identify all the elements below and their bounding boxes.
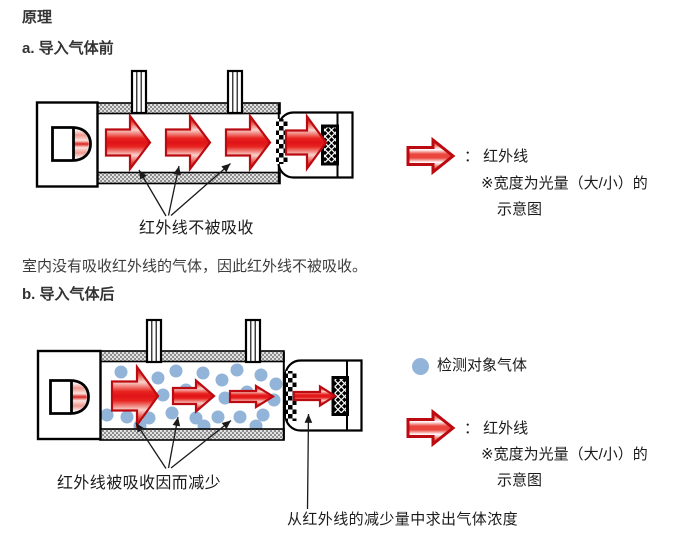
cell-wall-bottom	[96, 173, 280, 184]
ir-lamp-icon	[53, 128, 91, 161]
legend-b-gas-label: 检测对象气体	[437, 357, 527, 376]
legend-b-note-line2: 示意图	[497, 472, 542, 491]
caption-concentration: 从红外线的减少量中求出气体浓度	[287, 511, 518, 530]
legend-a-note-line2: 示意图	[497, 201, 542, 220]
body-paragraph: 室内没有吸收红外线的气体，因此红外线不被吸收。	[22, 258, 367, 277]
legend-b-arrow-label: ： 红外线	[464, 420, 528, 439]
legend-before-icons	[408, 140, 453, 172]
legend-ir-arrow-icon	[408, 140, 453, 172]
legend-b-note-line1: ※宽度为光量（大/小）的	[481, 446, 648, 465]
caption-absorbed-reduced: 红外线被吸收因而减少	[57, 474, 221, 494]
legend-a-note-line1: ※宽度为光量（大/小）的	[481, 175, 648, 194]
cell-wall-top	[96, 103, 280, 114]
cell-wall-bottom	[100, 429, 284, 440]
legend-ir-arrow-icon	[408, 412, 453, 444]
section-a-heading: a. 导入气体前	[22, 40, 114, 59]
gas-pipe-left	[147, 320, 161, 362]
gas-pipe-right	[228, 71, 242, 113]
legend-gas-dot-icon	[412, 358, 429, 375]
section-b-heading: b. 导入气体后	[22, 286, 115, 305]
gas-pipe-right	[246, 320, 260, 362]
ir-lamp-icon	[51, 381, 89, 414]
page-title: 原理	[22, 9, 52, 28]
ndir-principle-page: 原理 a. 导入气体前 红外线不被吸收 室内没有吸收红外线的气体，因此红外线不被…	[0, 0, 695, 547]
gas-pipe-left	[132, 71, 146, 113]
diagram-before-gas	[37, 71, 353, 216]
caption-not-absorbed: 红外线不被吸收	[139, 219, 254, 239]
legend-a-arrow-label: ： 红外线	[464, 148, 528, 167]
